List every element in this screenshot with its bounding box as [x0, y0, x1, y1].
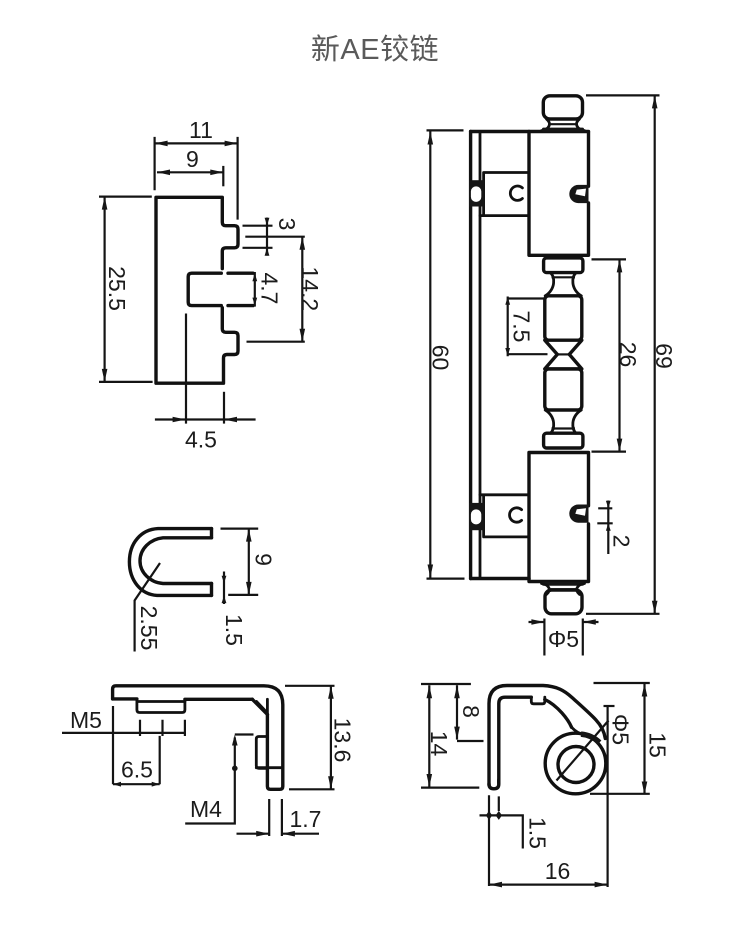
svg-text:14.2: 14.2: [297, 266, 323, 311]
svg-text:7.5: 7.5: [509, 311, 535, 343]
svg-text:Φ5: Φ5: [608, 714, 634, 745]
svg-text:1.5: 1.5: [221, 614, 247, 646]
svg-text:Φ5: Φ5: [548, 626, 579, 652]
svg-text:1.5: 1.5: [525, 817, 551, 849]
svg-text:15: 15: [645, 732, 671, 758]
svg-text:69: 69: [651, 343, 677, 369]
svg-text:16: 16: [545, 858, 571, 884]
svg-text:2.55: 2.55: [136, 606, 162, 651]
svg-text:26: 26: [615, 342, 641, 368]
svg-text:13.6: 13.6: [330, 718, 356, 763]
svg-text:8: 8: [458, 705, 484, 718]
svg-text:M5: M5: [70, 707, 102, 733]
svg-text:11: 11: [189, 117, 213, 143]
svg-text:1.7: 1.7: [290, 806, 322, 832]
svg-text:4.5: 4.5: [185, 427, 217, 453]
svg-text:9: 9: [186, 146, 199, 172]
svg-text:新AE铰链: 新AE铰链: [311, 33, 439, 66]
svg-text:14: 14: [426, 731, 452, 757]
svg-text:3: 3: [274, 218, 300, 231]
svg-text:25.5: 25.5: [104, 266, 130, 311]
svg-text:2: 2: [609, 535, 635, 548]
svg-text:6.5: 6.5: [121, 757, 153, 783]
svg-text:M4: M4: [190, 796, 222, 822]
svg-text:9: 9: [251, 553, 277, 566]
svg-text:60: 60: [428, 345, 454, 371]
svg-text:4.7: 4.7: [257, 273, 283, 305]
